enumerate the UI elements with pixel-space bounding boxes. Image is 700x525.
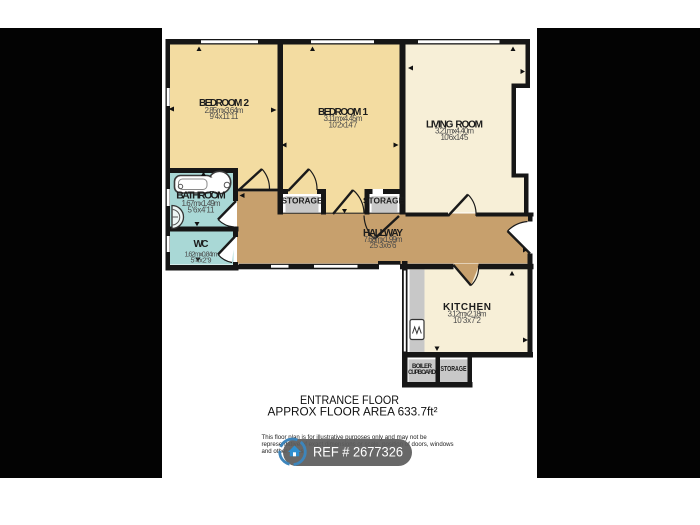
svg-text:APPROX FLOOR AREA 633.7ft²: APPROX FLOOR AREA 633.7ft² bbox=[268, 404, 438, 418]
svg-text:STORAGE: STORAGE bbox=[441, 366, 467, 373]
svg-text:STORAGE: STORAGE bbox=[363, 196, 404, 206]
svg-text:25'3x6'6: 25'3x6'6 bbox=[370, 241, 398, 250]
svg-text:5'4x2'9: 5'4x2'9 bbox=[191, 256, 212, 265]
svg-text:CUPBOARD: CUPBOARD bbox=[408, 370, 437, 376]
svg-text:STORAGE: STORAGE bbox=[282, 196, 323, 206]
svg-text:10'3x7'2: 10'3x7'2 bbox=[453, 316, 482, 325]
svg-text:10'6x14'5: 10'6x14'5 bbox=[441, 133, 470, 142]
svg-text:5'6x4'11: 5'6x4'11 bbox=[188, 206, 216, 215]
svg-text:9'4x11'11: 9'4x11'11 bbox=[210, 112, 240, 121]
svg-text:WC: WC bbox=[194, 239, 209, 250]
svg-text:10'2x14'7: 10'2x14'7 bbox=[329, 120, 359, 129]
svg-text:REF # 2677326: REF # 2677326 bbox=[313, 445, 403, 460]
